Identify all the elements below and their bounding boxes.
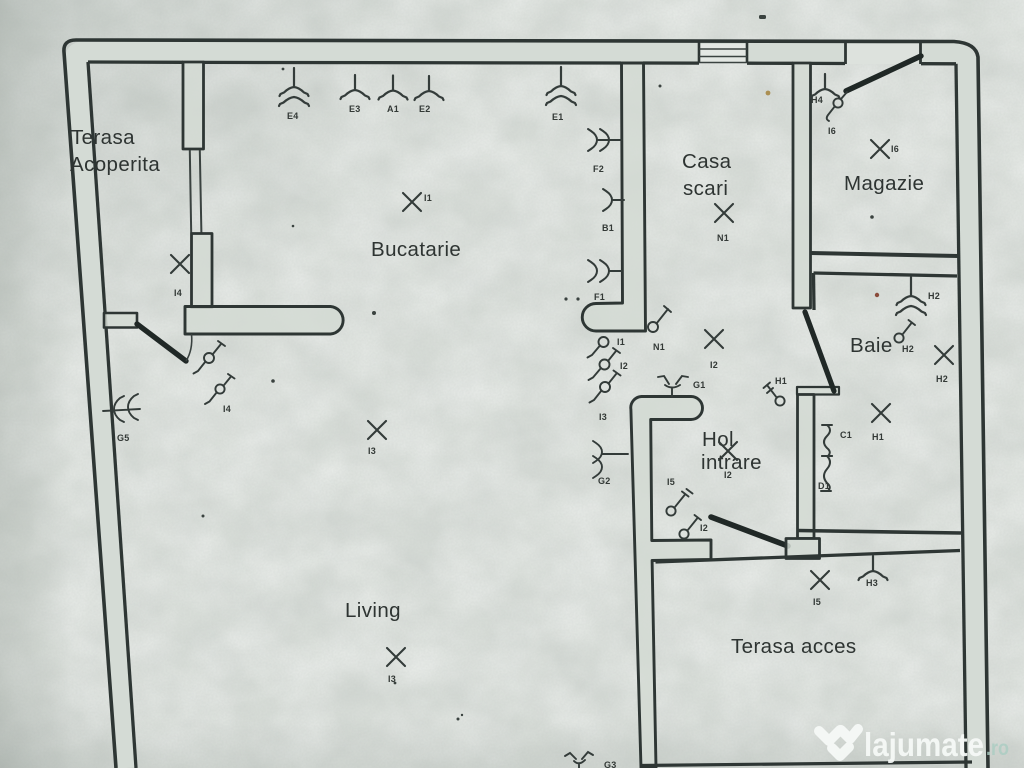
svg-text:I2: I2 xyxy=(710,360,718,370)
svg-text:I1: I1 xyxy=(617,337,625,347)
svg-text:I6: I6 xyxy=(828,126,836,136)
svg-text:I6: I6 xyxy=(891,144,899,154)
svg-text:G5: G5 xyxy=(117,433,129,443)
svg-text:H1: H1 xyxy=(775,376,787,386)
svg-text:I5: I5 xyxy=(813,597,821,607)
svg-text:Living: Living xyxy=(345,599,401,622)
svg-text:N1: N1 xyxy=(653,342,665,352)
svg-text:I3: I3 xyxy=(599,412,607,422)
svg-text:C1: C1 xyxy=(840,430,852,440)
svg-text:D1: D1 xyxy=(818,481,830,491)
svg-text:E4: E4 xyxy=(287,111,298,121)
svg-text:I3: I3 xyxy=(368,446,376,456)
svg-text:Bucatarie: Bucatarie xyxy=(371,238,461,261)
svg-text:F1: F1 xyxy=(594,292,605,302)
svg-text:I5: I5 xyxy=(667,477,675,487)
svg-text:G2: G2 xyxy=(598,476,610,486)
svg-text:E2: E2 xyxy=(419,104,430,114)
svg-text:I4: I4 xyxy=(174,288,182,298)
svg-text:Casa: Casa xyxy=(682,150,732,173)
svg-text:lajumate: lajumate xyxy=(864,726,984,763)
svg-text:I1: I1 xyxy=(424,193,432,203)
svg-text:H2: H2 xyxy=(928,291,940,301)
svg-text:Terasa: Terasa xyxy=(71,126,135,149)
svg-text:I2: I2 xyxy=(620,361,628,371)
svg-text:H2: H2 xyxy=(902,344,914,354)
svg-text:I2: I2 xyxy=(700,523,708,533)
svg-text:Acoperita: Acoperita xyxy=(70,153,160,176)
svg-text:G1: G1 xyxy=(693,380,705,390)
svg-text:G3: G3 xyxy=(604,760,616,768)
svg-text:H3: H3 xyxy=(866,578,878,588)
svg-text:Hol: Hol xyxy=(702,428,734,451)
svg-text:H2: H2 xyxy=(936,374,948,384)
svg-text:A1: A1 xyxy=(387,104,399,114)
svg-text:I4: I4 xyxy=(223,404,231,414)
svg-text:Magazie: Magazie xyxy=(844,172,924,195)
svg-text:E1: E1 xyxy=(552,112,563,122)
svg-text:F2: F2 xyxy=(593,164,604,174)
svg-text:Baie: Baie xyxy=(850,334,893,357)
svg-text:scari: scari xyxy=(683,177,728,200)
svg-text:H1: H1 xyxy=(872,432,884,442)
svg-text:I2: I2 xyxy=(724,470,732,480)
svg-text:N1: N1 xyxy=(717,233,729,243)
svg-text:H4: H4 xyxy=(811,95,823,105)
svg-text:E3: E3 xyxy=(349,104,360,114)
svg-text:.ro: .ro xyxy=(986,737,1009,760)
svg-text:Terasa acces: Terasa acces xyxy=(731,635,857,658)
svg-text:B1: B1 xyxy=(602,223,614,233)
